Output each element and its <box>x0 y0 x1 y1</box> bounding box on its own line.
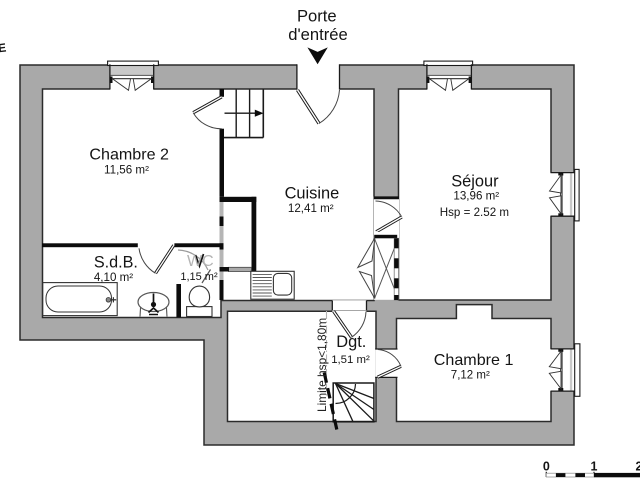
svg-text:d'entrée: d'entrée <box>288 25 347 44</box>
svg-text:11,56 m²: 11,56 m² <box>104 163 149 176</box>
svg-text:S.d.B.: S.d.B. <box>94 254 138 272</box>
svg-text:Limite hsp<1,80m: Limite hsp<1,80m <box>315 318 329 412</box>
svg-text:Hsp = 2.52 m: Hsp = 2.52 m <box>440 206 509 219</box>
svg-text:1,51 m²: 1,51 m² <box>331 354 370 366</box>
svg-text:13,96 m²: 13,96 m² <box>453 190 499 203</box>
svg-text:4,10 m²: 4,10 m² <box>94 271 133 284</box>
svg-text:Séjour: Séjour <box>451 172 499 190</box>
svg-text:Chambre 1: Chambre 1 <box>434 351 514 369</box>
svg-text:1: 1 <box>591 459 598 473</box>
svg-text:WC: WC <box>187 253 214 270</box>
svg-text:1,15 m²: 1,15 m² <box>180 271 218 283</box>
svg-text:12,41 m²: 12,41 m² <box>288 202 334 215</box>
svg-text:2: 2 <box>636 459 640 473</box>
svg-text:Cuisine: Cuisine <box>285 184 340 202</box>
svg-text:Dgt.: Dgt. <box>336 333 366 351</box>
svg-text:7,12 m²: 7,12 m² <box>451 370 490 382</box>
svg-text:0: 0 <box>543 459 550 473</box>
svg-text:Porte: Porte <box>297 6 337 25</box>
svg-text:Chambre 2: Chambre 2 <box>89 146 169 164</box>
svg-text:E: E <box>0 40 7 55</box>
